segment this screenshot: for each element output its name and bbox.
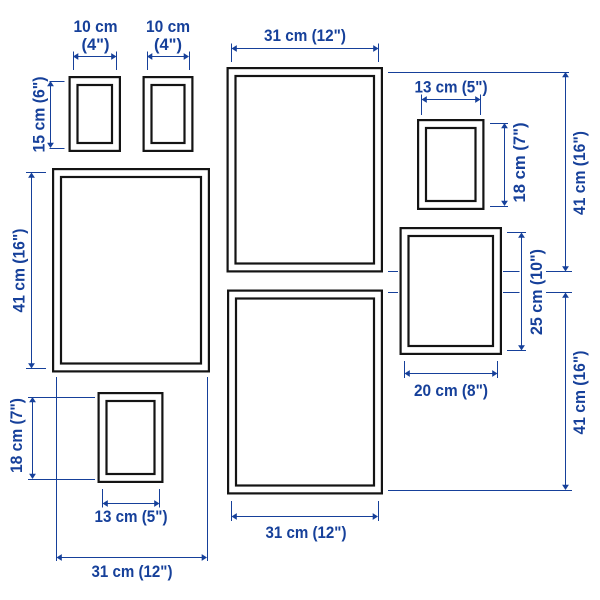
svg-text:13 cm (5"): 13 cm (5") (95, 508, 168, 526)
svg-text:31 cm (12"): 31 cm (12") (266, 524, 347, 542)
svg-text:41 cm (16"): 41 cm (16") (571, 131, 589, 215)
svg-text:18 cm (7"): 18 cm (7") (511, 123, 529, 203)
svg-text:13 cm (5"): 13 cm (5") (415, 79, 488, 97)
svg-text:(4"): (4") (154, 36, 182, 54)
svg-text:15 cm (6"): 15 cm (6") (31, 77, 49, 153)
svg-text:31 cm (12"): 31 cm (12") (92, 563, 173, 581)
svg-text:31 cm (12"): 31 cm (12") (264, 27, 346, 45)
svg-text:25 cm (10"): 25 cm (10") (528, 249, 546, 335)
svg-text:41 cm (16"): 41 cm (16") (11, 229, 29, 313)
svg-text:20 cm (8"): 20 cm (8") (414, 382, 488, 400)
svg-text:10 cm: 10 cm (74, 18, 118, 36)
svg-text:18 cm (7"): 18 cm (7") (8, 398, 26, 473)
svg-text:10 cm: 10 cm (146, 18, 190, 36)
svg-text:41 cm (16"): 41 cm (16") (571, 351, 589, 435)
svg-text:(4"): (4") (82, 36, 110, 54)
